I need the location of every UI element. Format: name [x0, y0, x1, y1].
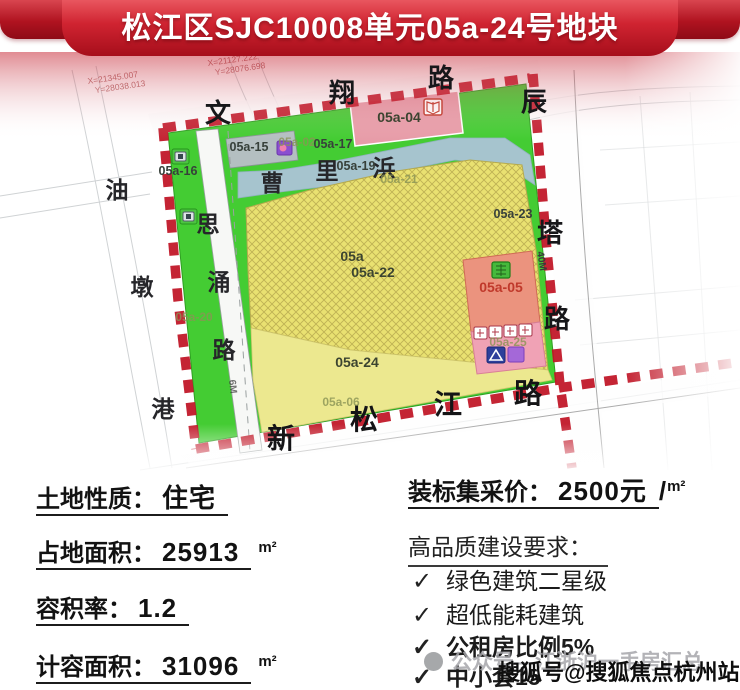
parcel-label-05a-25: 05a-25 — [489, 335, 527, 349]
road-wenxiang-char-3: 路 — [428, 63, 455, 93]
far-label: 容积率： — [36, 596, 132, 623]
road-siyong-char-1: 思 — [197, 211, 220, 237]
parcel-label-05a-24: 05a-24 — [335, 354, 379, 370]
info-site-area-row: 占地面积：25913m² — [36, 533, 277, 568]
road-width-label-6m: 6M — [226, 379, 238, 394]
parcel-label-05a-17: 05a-17 — [314, 137, 353, 151]
waterway-youdungang-char-1: 油 — [106, 177, 129, 203]
waterway-youdungang-char-3: 港 — [152, 396, 176, 422]
gfa-label: 计容面积： — [36, 654, 156, 681]
road-wenxiang-char-1: 文 — [205, 98, 232, 128]
parcel-label-05a-22: 05a-22 — [351, 264, 395, 280]
site-area-unit: m² — [258, 539, 276, 556]
parcel-label-05a-21: 05a-21 — [380, 172, 418, 186]
gfa-unit: m² — [258, 653, 276, 670]
river-caolibang-char-2: 里 — [316, 158, 339, 184]
parcel-label-05a-15: 05a-15 — [230, 140, 269, 154]
parcel-label-05a-05: 05a-05 — [479, 279, 523, 295]
parcel-label-05a-23: 05a-23 — [494, 207, 533, 221]
watermark-sohu: 搜狐号@搜狐焦点杭州站 — [498, 655, 739, 687]
fitout-price-label: 装标集采价： — [408, 479, 552, 506]
gfa-value: 31096 — [162, 651, 239, 681]
fitout-price-value: 2500元 — [558, 476, 647, 506]
road-siyong-char-2: 涌 — [208, 269, 231, 295]
checkmark-icon: ✓ — [412, 601, 446, 630]
parking-icon-2 — [180, 209, 197, 224]
banner-ribbon-front: 松江区SJC10008单元05a-24号地块 — [62, 0, 678, 56]
info-gfa-row: 计容面积：31096m² — [36, 647, 277, 682]
site-area-value: 25913 — [162, 537, 239, 567]
road-wenxiang-char-2: 翔 — [329, 78, 355, 108]
right-edge-fade — [625, 52, 740, 482]
land-parcel-infographic: X=21345.007 Y=28038.013 X=21127.222 Y=28… — [0, 0, 740, 690]
road-chenta-char-2: 塔 — [537, 218, 564, 248]
road-chenta-char-1: 辰 — [521, 87, 547, 117]
requirement-item-green-building: ✓绿色建筑二星级 — [412, 562, 607, 596]
fitout-price-slash: / — [659, 476, 666, 506]
wechat-logo-icon — [424, 652, 443, 671]
parcel-label-05a-06: 05a-06 — [322, 395, 360, 409]
parcel-label-05a-02: 05a-02 — [278, 135, 316, 149]
facility-icon-violet — [508, 347, 524, 362]
requirement-item-low-energy: ✓超低能耗建筑 — [412, 596, 584, 630]
requirement-text: 超低能耗建筑 — [446, 602, 584, 628]
far-value: 1.2 — [138, 593, 177, 623]
requirement-text: 绿色建筑二星级 — [446, 568, 607, 594]
checkmark-icon: ✓ — [412, 567, 446, 596]
road-xinsongjiang-char-1: 新 — [267, 423, 295, 454]
parcel-label-05a-19: 05a-19 — [337, 159, 376, 173]
road-xinsongjiang-char-3: 江 — [434, 389, 462, 420]
title-banner: 松江区SJC10008单元05a-24号地块 — [0, 0, 740, 60]
parcel-label-05a-20: 05a-20 — [175, 310, 213, 324]
parcel-label-05a-16: 05a-16 — [159, 164, 198, 178]
road-chenta-char-3: 路 — [544, 304, 571, 334]
land-use-value: 住宅 — [162, 483, 216, 513]
planning-map: X=21345.007 Y=28038.013 X=21127.222 Y=28… — [0, 0, 740, 690]
river-caolibang-char-1: 曹 — [261, 170, 284, 196]
info-far-row: 容积率：1.2 — [36, 589, 189, 624]
fitout-price-unit: m² — [667, 478, 685, 495]
page-title: 松江区SJC10008单元05a-24号地块 — [121, 3, 618, 53]
parking-icon-1 — [172, 149, 189, 164]
road-siyong-char-3: 路 — [213, 337, 237, 363]
info-land-use-row: 土地性质：住宅 — [36, 478, 228, 515]
parcel-label-05a: 05a — [340, 248, 364, 264]
info-fitout-price-row: 装标集采价：2500元/m² — [408, 471, 685, 508]
road-xinsongjiang-char-4: 路 — [514, 378, 543, 409]
triangle-warning-icon — [487, 347, 505, 363]
waterway-youdungang-char-2: 墩 — [131, 274, 155, 300]
site-area-label: 占地面积： — [36, 540, 156, 567]
parcel-label-05a-04: 05a-04 — [377, 109, 421, 125]
land-use-label: 土地性质： — [36, 486, 156, 513]
community-facility-icon-green — [492, 262, 510, 278]
